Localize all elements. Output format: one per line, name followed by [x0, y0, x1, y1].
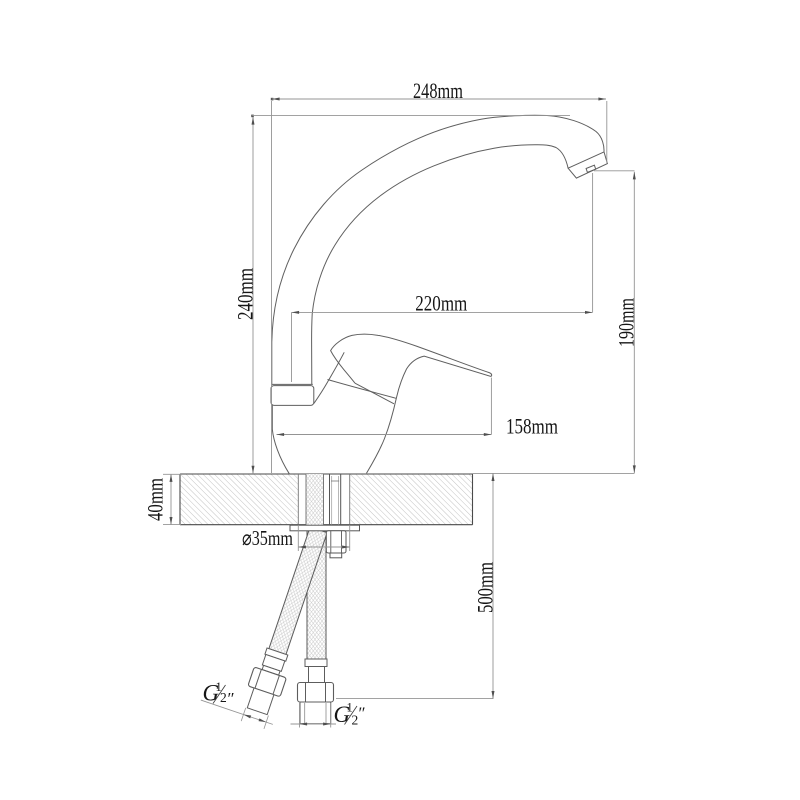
svg-text:″: ″ — [359, 704, 366, 723]
svg-text:⌀35mm: ⌀35mm — [242, 526, 293, 550]
svg-text:220mm: 220mm — [415, 291, 467, 316]
svg-text:190mm: 190mm — [614, 298, 639, 347]
svg-text:240mm: 240mm — [233, 268, 258, 320]
svg-text:2: 2 — [352, 713, 359, 728]
svg-text:158mm: 158mm — [506, 414, 558, 439]
svg-text:500mm: 500mm — [473, 562, 498, 613]
svg-text:2: 2 — [220, 690, 227, 705]
svg-text:″: ″ — [228, 689, 235, 708]
svg-text:40mm: 40mm — [143, 478, 168, 521]
svg-text:248mm: 248mm — [413, 78, 463, 103]
